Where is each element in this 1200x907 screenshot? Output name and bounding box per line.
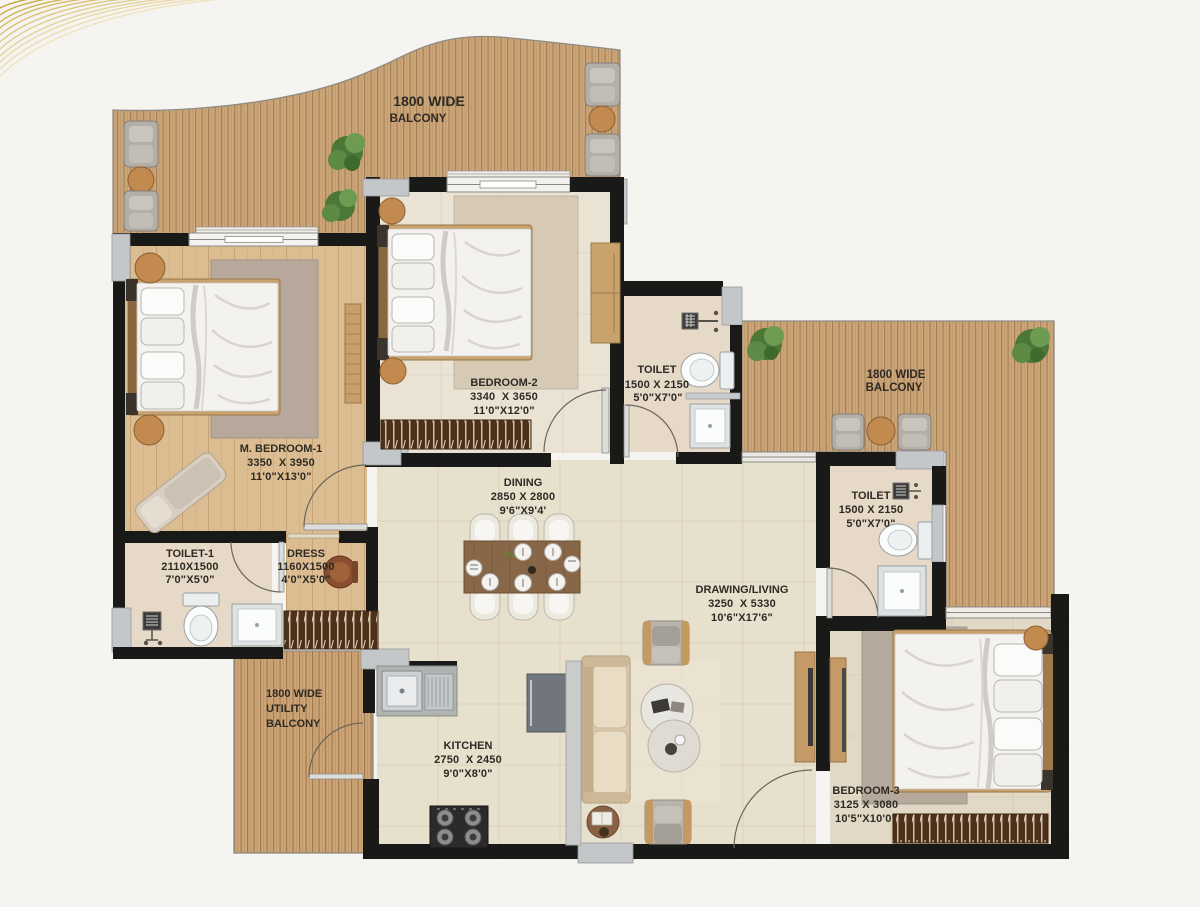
svg-text:3125 X 3080: 3125 X 3080	[834, 799, 899, 811]
svg-text:UTILITY: UTILITY	[266, 703, 308, 715]
svg-text:BALCONY: BALCONY	[390, 113, 447, 125]
svg-text:KITCHEN: KITCHEN	[444, 740, 493, 752]
svg-text:BALCONY: BALCONY	[866, 382, 923, 394]
svg-text:BEDROOM-2: BEDROOM-2	[470, 377, 537, 389]
svg-text:TOILET: TOILET	[852, 490, 891, 502]
svg-text:BALCONY: BALCONY	[266, 718, 321, 730]
svg-text:9'0"X8'0": 9'0"X8'0"	[443, 768, 492, 780]
svg-text:2750 X 2450: 2750 X 2450	[434, 754, 502, 766]
svg-text:TOILET: TOILET	[638, 364, 677, 376]
svg-text:M. BEDROOM-1: M. BEDROOM-1	[240, 443, 323, 455]
svg-text:11'0"X12'0": 11'0"X12'0"	[473, 405, 534, 417]
svg-text:1160X1500: 1160X1500	[277, 561, 334, 573]
svg-text:1800 WIDE: 1800 WIDE	[393, 93, 465, 109]
svg-text:1500 X 2150: 1500 X 2150	[625, 379, 690, 391]
svg-text:7'0"X5'0": 7'0"X5'0"	[165, 574, 214, 586]
svg-text:3340 X 3650: 3340 X 3650	[470, 391, 538, 403]
svg-text:4'0"X5'0": 4'0"X5'0"	[281, 574, 330, 586]
svg-text:2850 X 2800: 2850 X 2800	[491, 491, 556, 503]
svg-text:BEDROOM-3: BEDROOM-3	[832, 785, 899, 797]
svg-text:3350 X 3950: 3350 X 3950	[247, 457, 315, 469]
svg-text:5'0"X7'0": 5'0"X7'0"	[846, 518, 895, 530]
svg-text:1500 X 2150: 1500 X 2150	[839, 504, 904, 516]
svg-text:DINING: DINING	[504, 477, 543, 489]
svg-text:10'6"X17'6": 10'6"X17'6"	[711, 612, 773, 624]
svg-text:9'6"X9'4': 9'6"X9'4'	[500, 505, 547, 517]
svg-text:TOILET-1: TOILET-1	[166, 548, 214, 560]
svg-text:10'5"X10'0": 10'5"X10'0"	[835, 813, 897, 825]
svg-text:11'0"X13'0": 11'0"X13'0"	[250, 471, 311, 483]
svg-text:5'0"X7'0": 5'0"X7'0"	[633, 392, 682, 404]
svg-text:3250 X 5330: 3250 X 5330	[708, 598, 776, 610]
svg-text:DRAWING/LIVING: DRAWING/LIVING	[696, 584, 789, 596]
svg-text:DRESS: DRESS	[287, 548, 325, 560]
svg-text:2110X1500: 2110X1500	[161, 561, 218, 573]
svg-text:1800 WIDE: 1800 WIDE	[867, 369, 926, 381]
svg-text:1800 WIDE: 1800 WIDE	[266, 688, 322, 700]
